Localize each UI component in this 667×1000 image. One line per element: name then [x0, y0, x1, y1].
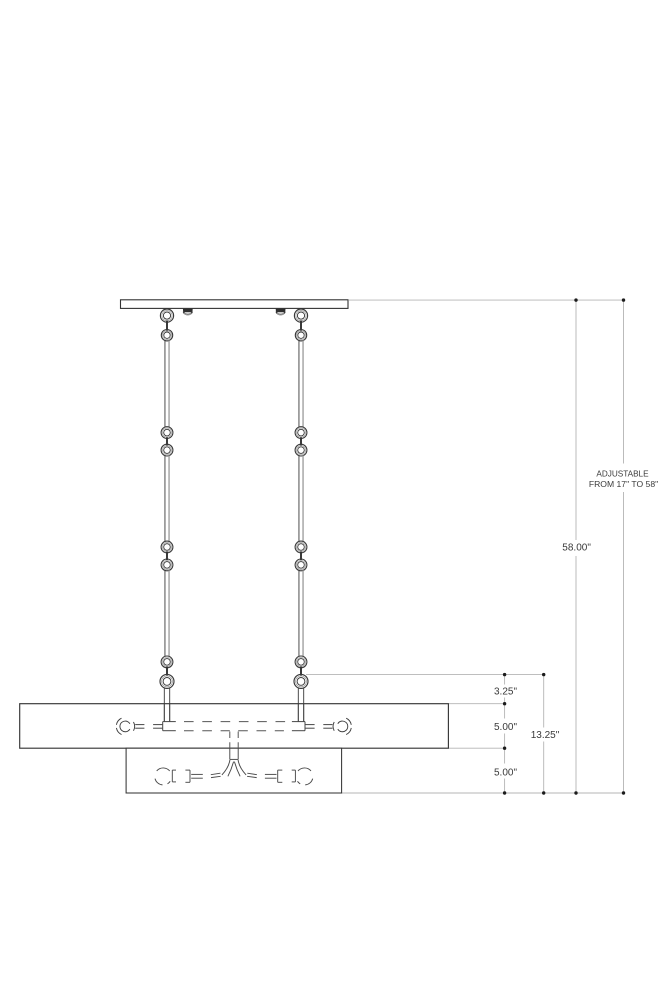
svg-text:3.25": 3.25"	[494, 686, 517, 697]
svg-text:5.00": 5.00"	[494, 722, 517, 733]
svg-text:5.00": 5.00"	[494, 767, 517, 778]
svg-text:ADJUSTABLE: ADJUSTABLE	[596, 469, 649, 478]
svg-text:FROM 17" TO 58": FROM 17" TO 58"	[589, 479, 658, 489]
svg-text:13.25": 13.25"	[531, 730, 560, 741]
svg-text:58.00": 58.00"	[562, 543, 591, 554]
